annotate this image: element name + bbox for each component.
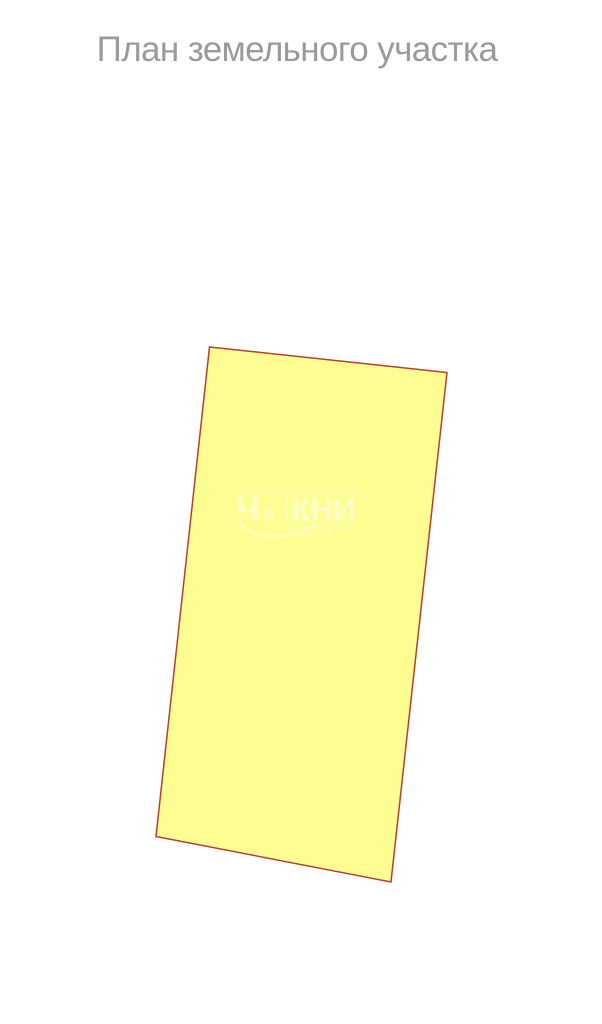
svg-text:е: е <box>263 503 275 526</box>
svg-text:Ч: Ч <box>236 490 261 529</box>
svg-text:основано в 1997 году: основано в 1997 году <box>285 525 355 532</box>
svg-text:КНИ: КНИ <box>291 492 356 528</box>
svg-text:®: ® <box>355 486 361 494</box>
svg-text:жилая недвижимость: жилая недвижимость <box>284 532 334 538</box>
